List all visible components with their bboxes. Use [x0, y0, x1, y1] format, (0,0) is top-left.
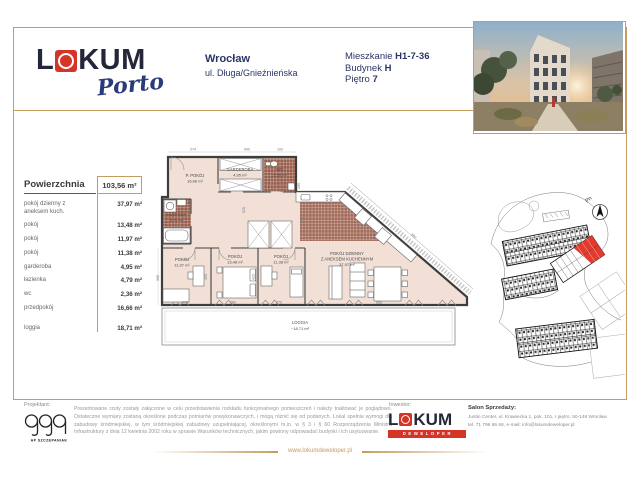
sales-office-info: Salon Sprzedaży: Justin Center, ul. Kraw… — [468, 405, 628, 430]
table-row: przedpokój16,66 m² — [24, 305, 142, 313]
street-name: ul. Długa/Gnieźnieńska — [205, 68, 298, 78]
svg-text:868: 868 — [376, 300, 382, 304]
svg-text:37,97 m²: 37,97 m² — [339, 262, 355, 267]
designer-name: AP SZCZEPANIAK — [31, 439, 68, 443]
sales-office-contact: tel. 71 796 66 66, e-mail: info@lokumdew… — [468, 422, 628, 430]
svg-text:4,95 m²: 4,95 m² — [233, 173, 247, 178]
room-label-lazienka: ŁAZIENKA — [167, 212, 187, 217]
room-label-wc: WC — [277, 167, 284, 172]
table-row: wc2,36 m² — [24, 291, 142, 299]
table-row: loggia18,71 m² — [24, 325, 142, 333]
frame-bottom-line — [13, 399, 627, 400]
svg-text:525: 525 — [242, 207, 246, 213]
svg-text:180: 180 — [173, 224, 179, 228]
svg-text:11,38 m²: 11,38 m² — [273, 260, 289, 265]
svg-text:880: 880 — [410, 233, 417, 240]
deweloper-banner: DEWELOPER — [388, 430, 466, 438]
table-row: pokój dzienny z aneksem kuch.37,97 m² — [24, 201, 142, 216]
svg-text:270: 270 — [276, 300, 282, 304]
qqp-circles-icon — [26, 415, 66, 435]
svg-text:368: 368 — [156, 275, 160, 281]
area-table: Powierzchnia 103,56 m² pokój dzienny z a… — [24, 176, 142, 338]
svg-text:2,36 m²: 2,36 m² — [273, 173, 287, 178]
table-row: pokój13,48 m² — [24, 222, 142, 230]
designer-label: Projektant: — [24, 402, 50, 408]
site-plan: Pn — [487, 186, 625, 393]
site-building-mid — [502, 269, 558, 300]
table-row: garderoba4,95 m² — [24, 264, 142, 272]
svg-text:4,79 m²: 4,79 m² — [170, 218, 184, 223]
sales-office-title: Salon Sprzedaży: — [468, 405, 628, 411]
area-table-title: Powierzchnia — [24, 176, 96, 194]
building-photo — [473, 21, 626, 134]
svg-text:296: 296 — [182, 300, 188, 304]
ap-szczepaniak-logo: AP SZCZEPANIAK — [24, 411, 74, 443]
site-landscaping — [498, 201, 569, 232]
header-divider-line — [13, 110, 473, 111]
svg-text:403: 403 — [204, 274, 208, 280]
sales-office-address: Justin Center, ul. Krawiecka 1, pok. 101… — [468, 414, 628, 422]
building-number: Budynek H — [345, 63, 430, 75]
svg-text:100: 100 — [277, 148, 283, 152]
table-row: pokój11,97 m² — [24, 236, 142, 244]
building-photo-art — [474, 22, 623, 131]
svg-text:~18,71 m²: ~18,71 m² — [291, 326, 310, 331]
frame-top-line — [13, 27, 473, 28]
frame-right-line — [626, 27, 627, 399]
svg-text:16,66 m²: 16,66 m² — [187, 179, 203, 184]
frame-left-line — [13, 27, 14, 399]
room-label-pokoj-3: POKÓJ — [274, 254, 288, 259]
room-label-garderoba: GARDEROBA — [227, 167, 254, 172]
room-label-loggia: LOGGIA — [292, 320, 308, 325]
porto-script-logo: Porto — [96, 69, 165, 102]
room-label-salon: POKÓJ DZIENNY — [330, 251, 364, 256]
city-name: Wrocław — [205, 53, 298, 65]
footer-rule-right — [362, 451, 490, 453]
svg-text:940: 940 — [244, 148, 250, 152]
lokum-porto-logo: LKUM — [36, 46, 146, 75]
area-table-divider — [97, 176, 98, 332]
room-label-pokoj-1: POKÓJ — [175, 257, 189, 262]
room-label-przedpokoj: P. POKÓJ — [186, 173, 205, 178]
project-location: Wrocław ul. Długa/Gnieźnieńska — [205, 53, 298, 78]
svg-text:190: 190 — [297, 183, 301, 189]
site-building-south — [516, 319, 598, 357]
apartment-number: Mieszkanie H1-7-36 — [345, 51, 430, 63]
total-area-value: 103,56 m² — [97, 176, 142, 194]
svg-text:423: 423 — [252, 274, 256, 280]
svg-text:Z ANEKSEM KUCHENNYM: Z ANEKSEM KUCHENNYM — [321, 257, 374, 262]
floor-plan: 274 940 100 296 280 270 868 368 403 423 … — [155, 140, 487, 392]
apartment-info: Mieszkanie H1-7-36 Budynek H Piętro 7 — [345, 51, 430, 86]
investor-label: Inwestor: — [389, 402, 411, 408]
svg-text:280: 280 — [230, 300, 236, 304]
floor-number: Piętro 7 — [345, 74, 430, 86]
area-rows: pokój dzienny z aneksem kuch.37,97 m² po… — [24, 201, 142, 332]
table-row: łazienka4,79 m² — [24, 277, 142, 285]
svg-text:11,97 m²: 11,97 m² — [174, 263, 190, 268]
lokum-o-icon-small — [399, 413, 412, 426]
north-label: Pn — [584, 196, 593, 205]
footer-rule-left — [150, 451, 278, 453]
legal-disclaimer: Prezentowane rzuty zostały załączone w c… — [74, 406, 392, 437]
north-arrow: Pn — [584, 196, 607, 220]
svg-text:13,48 m²: 13,48 m² — [227, 260, 243, 265]
table-row: pokój11,38 m² — [24, 250, 142, 258]
apartment-card-page: LKUM Porto Wrocław ul. Długa/Gnieźnieńsk… — [0, 0, 640, 480]
svg-text:245: 245 — [300, 217, 304, 223]
website-url: www.lokumdeweloper.pl — [278, 448, 362, 454]
room-label-pokoj-2: POKÓJ — [228, 254, 242, 259]
lokum-o-icon — [55, 50, 77, 72]
logo-text-l: L — [36, 46, 54, 75]
lokum-deweloper-logo: LKUM DEWELOPER — [388, 411, 466, 438]
svg-text:274: 274 — [190, 148, 196, 152]
